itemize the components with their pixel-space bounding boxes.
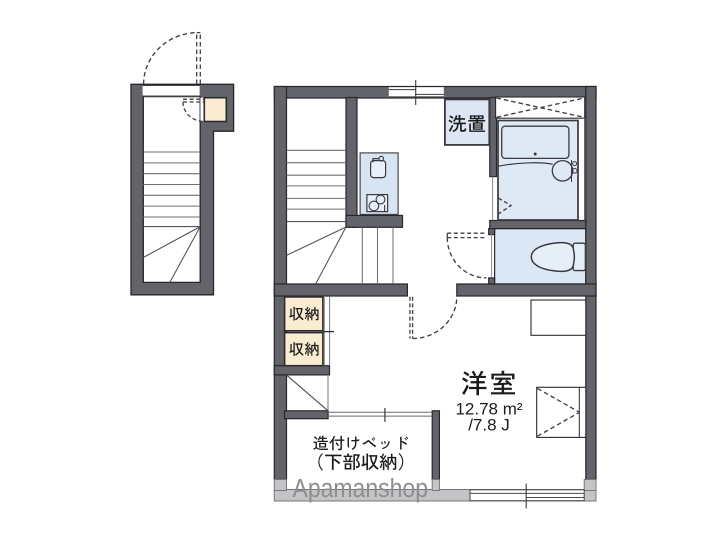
svg-text:/7.8 J: /7.8 J — [468, 416, 510, 435]
svg-text:Apamanshop: Apamanshop — [293, 475, 429, 503]
